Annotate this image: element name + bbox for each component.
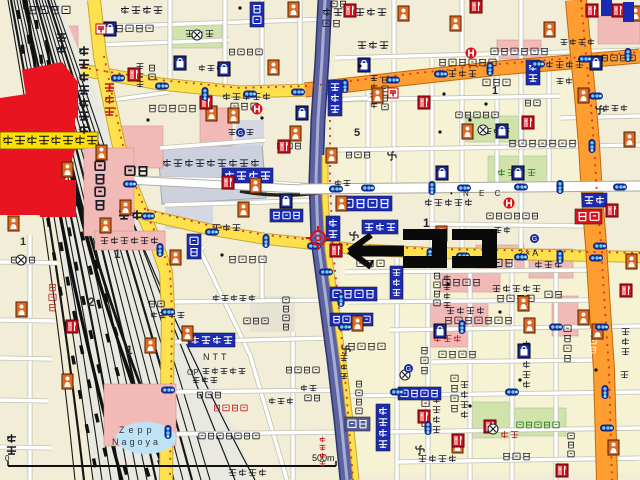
svg-text:1: 1 xyxy=(492,85,498,97)
svg-text:OP: OP xyxy=(187,368,199,377)
svg-text:NTT: NTT xyxy=(203,352,230,362)
svg-text:1: 1 xyxy=(114,247,121,261)
svg-text:0: 0 xyxy=(5,454,10,463)
svg-text:G: G xyxy=(532,236,537,243)
svg-text:Nagoya: Nagoya xyxy=(112,437,161,447)
svg-text:G: G xyxy=(238,130,243,137)
svg-text:1: 1 xyxy=(126,343,133,357)
svg-text:1: 1 xyxy=(20,236,26,248)
svg-text:G: G xyxy=(406,366,411,373)
svg-text:5: 5 xyxy=(354,127,360,139)
svg-text:2: 2 xyxy=(88,295,95,309)
svg-text:Zepp: Zepp xyxy=(119,425,156,435)
svg-text:1: 1 xyxy=(423,216,430,230)
